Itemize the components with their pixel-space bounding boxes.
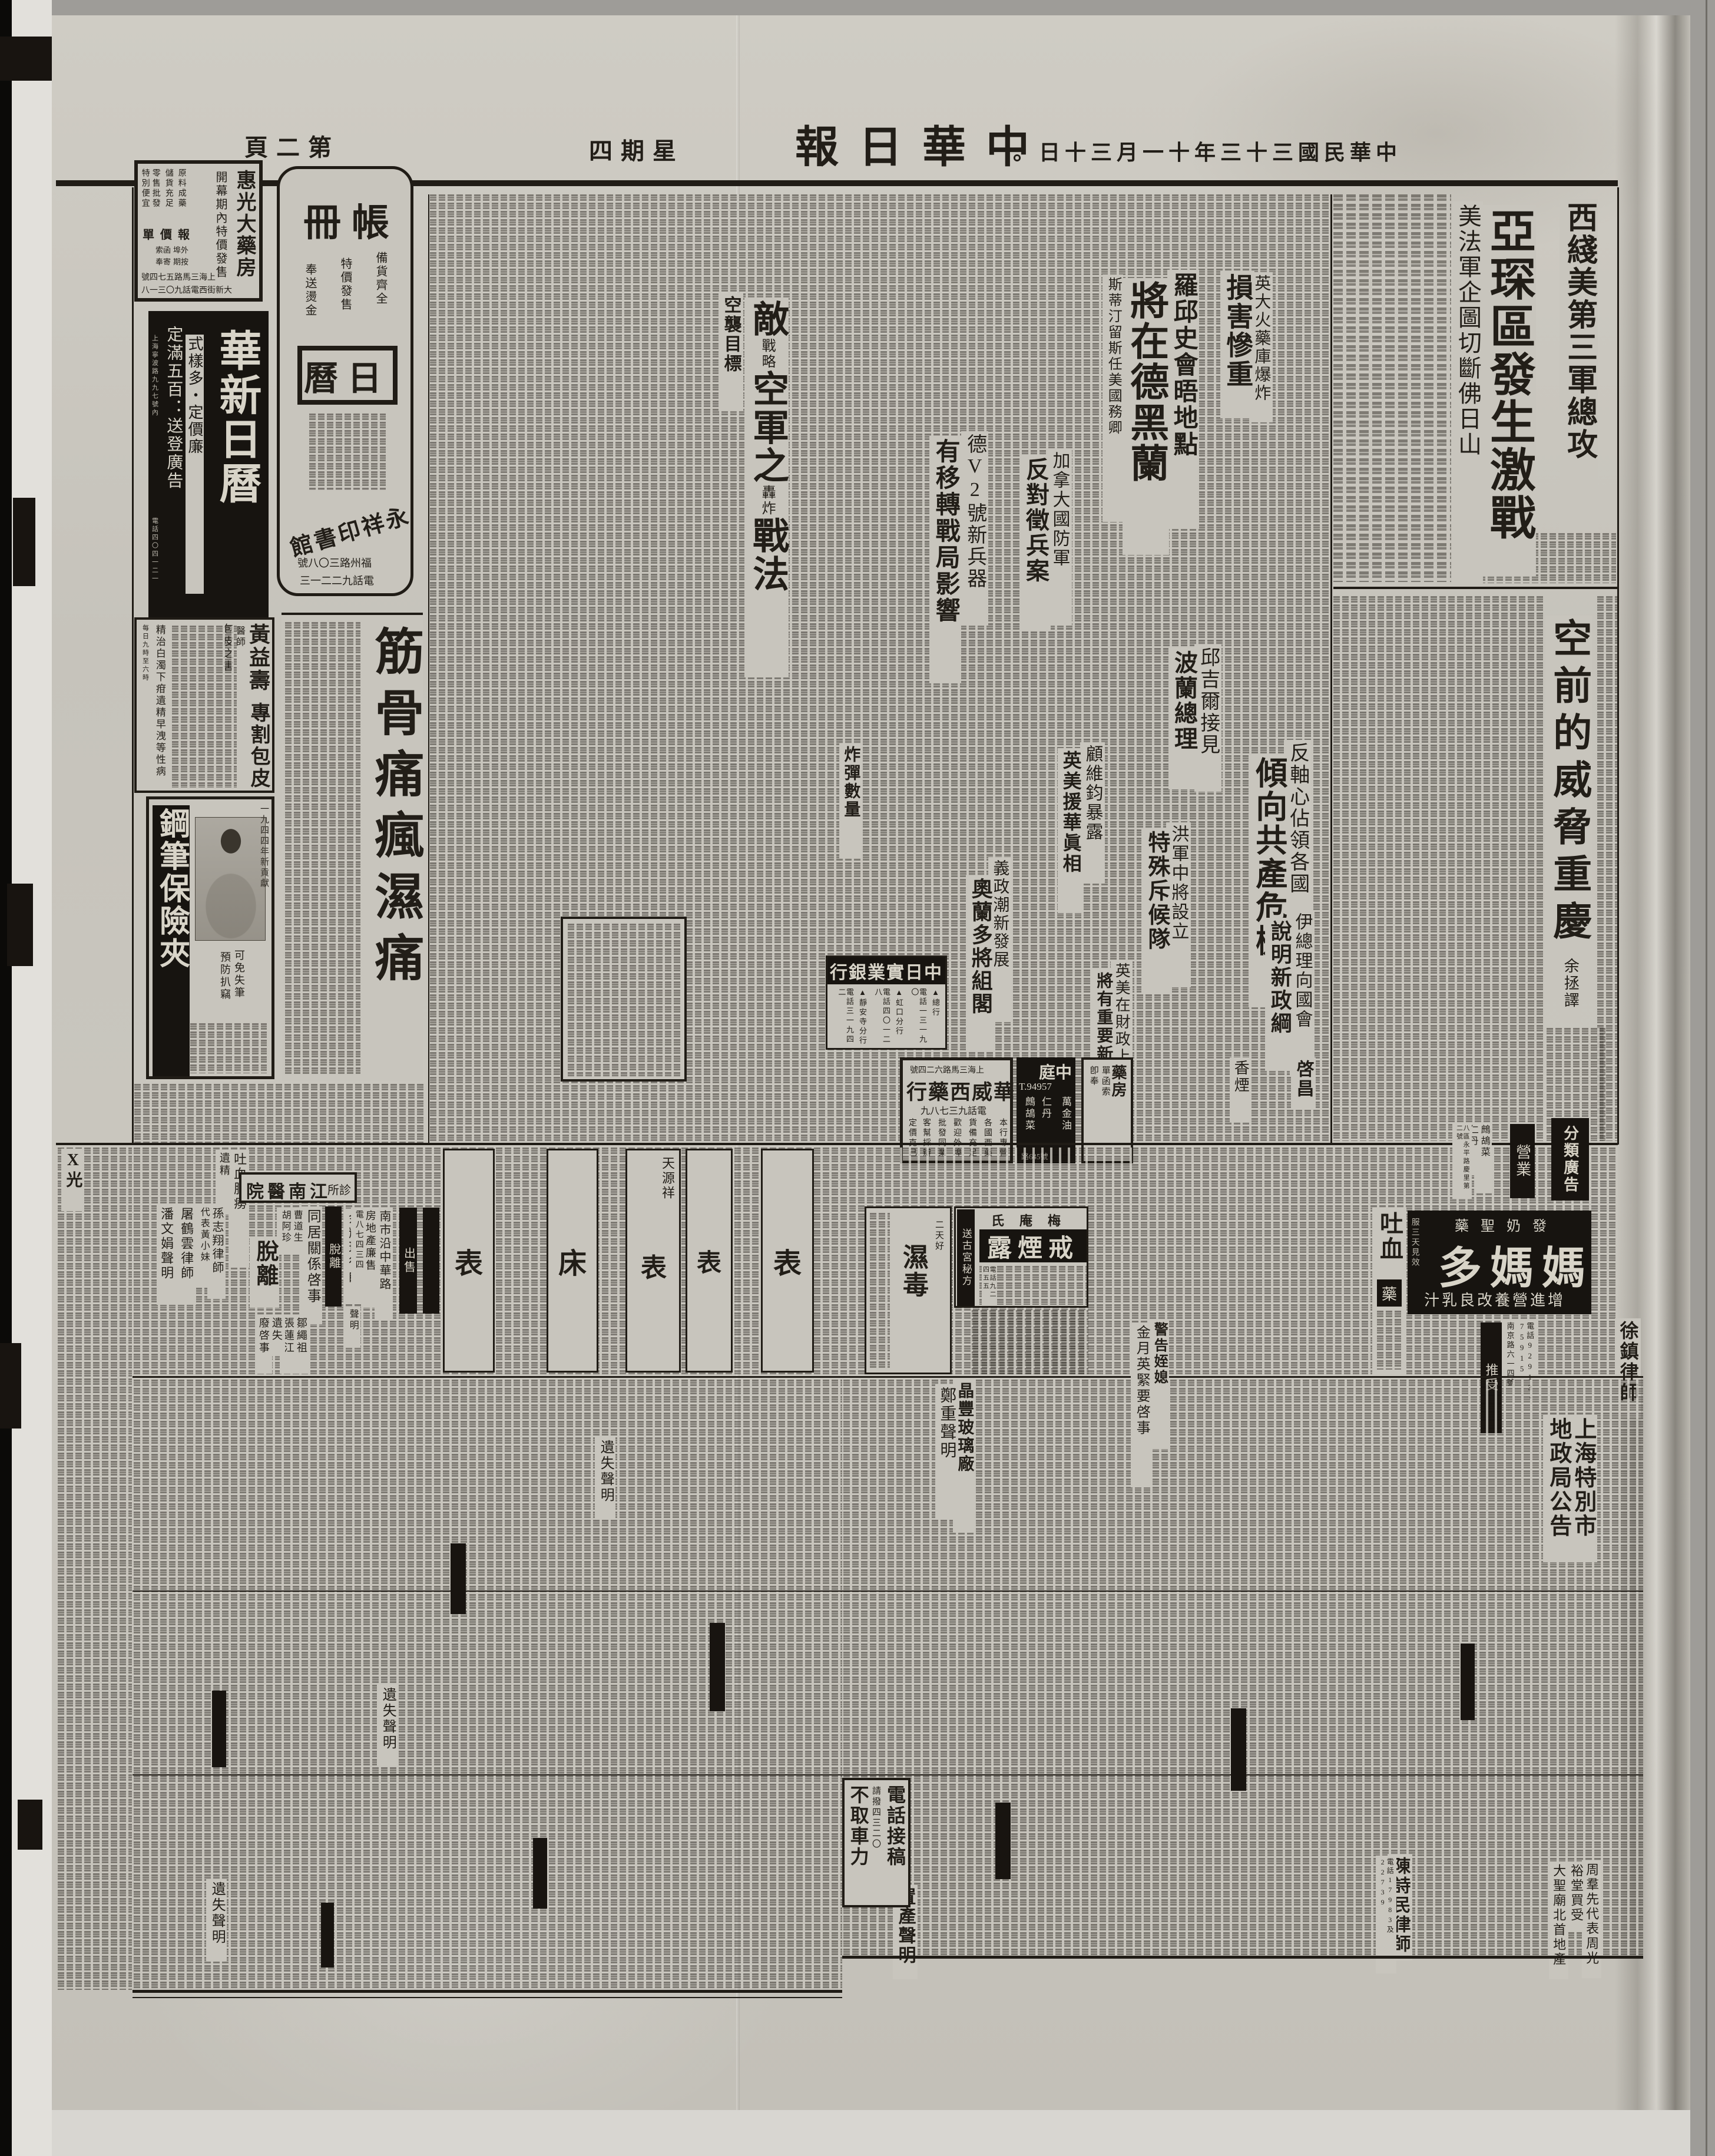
ad-huawei-phone: 九八七三九話電 [921,1103,986,1117]
ad-huawei-address: 號四二六路馬三海上 [910,1064,984,1076]
ad-huiguang-q: 期按 [173,256,188,267]
ad-ledger-point: 備貨齊全 [374,252,386,316]
notice-lost-stmt: 遺失聲明 [206,1879,227,1962]
ad-ledger-publisher: 館書印祥永 [286,497,413,563]
ad-zhongting-phone: T.94957 [1019,1081,1052,1093]
ad-bank-branch: ▲虹口分行 [895,988,903,1047]
ad-huang-hours: 每日九時至六時 [141,624,148,742]
ad-huiguang-q: 索函 [155,244,171,255]
bed-char: 床 [558,1240,587,1281]
notice-fei: 廢啓事 [255,1315,272,1374]
scan-artifact-blob [7,884,33,966]
notice-warn: 警告姪媳 [1148,1320,1169,1449]
ad-zhongting-item: 鷓鴣菜 [1024,1096,1034,1148]
lead-kicker: 西綫美第三軍總攻 [1560,199,1598,532]
ad-smoke-side: 送古宮秘方 [957,1209,975,1306]
row-rule [133,1774,1643,1775]
ad-smoke-phone: 電話九二四五五 [982,1266,995,1305]
ad-huaxin-phone: 電話四〇四一二一 [151,517,158,600]
label-bar [533,1838,547,1909]
ad-jiangnan-hospital: 院醫南江 所診 [239,1172,357,1203]
man-illustration [195,817,266,941]
ad-huiguang-address: 號四七五路馬三海上 [141,271,216,283]
headline-koo-title: 英美援華眞相 [1058,748,1084,913]
notice-sun-sub: 代表黃小妹 [196,1205,211,1287]
ad-huiguang-point: 原料成藥 [177,168,186,221]
ad-huiguang-q: 埠外 [173,244,188,255]
ad-blood: 吐血 藥 [1372,1208,1406,1375]
ad-pen-tag1: 可免失筆 [233,950,244,1014]
notice-lost-stmt: 遺失聲明 [595,1437,615,1520]
ad-huiguang-promo: 開幕期內特價發售 [214,171,226,297]
ad-huang-name: 黃益壽 [246,623,269,700]
notice-zhou3: 大聖廟北首地產 [1549,1861,1568,1979]
notice-glass2: 鄭重聲明 [935,1384,958,1520]
ad-zhongting-name: 庭中 [1039,1060,1072,1083]
ad-bed-shop: 床 [547,1149,598,1373]
watch-shop-name: 天源祥 [661,1156,674,1227]
subhead-bomb-count: 炸彈數量 [839,743,862,858]
headline-iran-kicker: 伊總理向國會 [1290,910,1315,1075]
ad-huang-note: 精治白濁下疳遺精早洩等性病 [154,624,165,789]
ad-pain-plaster: 筋骨痛瘋濕痛 [282,613,423,1081]
notice-land-bureau2: 地政局公告 [1543,1415,1572,1562]
bottom-rule-left2 [133,1997,842,1998]
ad-huaxin-tag1: 式樣多・定價廉 [186,335,204,594]
masthead-weekday: 四期星 [589,132,684,166]
ad-huiguang-quote: 單價報 [143,225,196,242]
ad-pen-clip: 鋼筆保險夾 一九四四年新貢獻 可免失筆 預防扒竊 [146,796,274,1079]
ad-watch-shop: 天源祥 表 [625,1149,681,1373]
ad-pharmacy-name: 藥房 [1110,1064,1126,1117]
ad-ledger-point: 奉送燙金 [303,263,316,328]
ad-pain-name: 筋骨痛瘋濕痛 [369,626,421,1073]
ad-ledger-point: 特價發售 [339,257,351,322]
ad-ledger-detail-text [309,414,386,490]
ad-watch-shop: 表 [443,1149,495,1373]
ad-huiguang-address: 八一三〇九話電西街新大 [141,284,232,296]
airforce-main3: 戰法 [747,517,787,593]
section-rule [133,1376,1643,1378]
headline-scout-title: 特殊斥候隊 [1141,828,1171,993]
ad-lung: 吐血肺癆 [230,1150,249,1268]
ad-qichang-name: 啓昌 [1291,1057,1316,1108]
scanner-right-edge-line [1706,0,1707,2156]
ad-mamaduo-name: 多媽媽 [1438,1233,1594,1296]
section-rule [1333,587,1618,589]
watch-char: 表 [455,1240,483,1281]
ad-ledger-address: 號八〇三路州福 [297,555,372,570]
ad-damp-name: 濕毒 [899,1244,926,1326]
ad-huaxin-addr: 上海寧波路九九七號內 [151,335,158,511]
promo-line2: 請撥四三二〇 [870,1786,880,1880]
watch-char: 表 [697,1243,721,1279]
scanner-left-black-edge [0,0,12,2156]
scan-artifact-blob [18,1800,42,1850]
headline-churchill-title: 波蘭總理 [1168,648,1199,789]
row-rule [133,1590,1643,1592]
classified-header: 分類廣告 [1551,1118,1589,1201]
ad-damp-side: 二天好 [933,1220,943,1267]
ad-damp: 濕毒 二天好 [865,1206,952,1374]
ad-bank-phone: 電話一三一九〇 [911,988,926,1047]
feature-title: 空前的威脅重慶 [1545,616,1592,951]
headline-powder-title: 損害慘重 [1220,271,1254,418]
ad-ledger-name: 冊帳 [303,193,400,247]
label-detach: 脫離 [325,1206,342,1307]
headline-tehran-kicker: 羅邱史會晤地點 [1167,270,1199,529]
notice-yu-sub: 聲明 [345,1307,360,1348]
ad-bank-phone: 電話三一九四二 [837,988,853,1047]
watch-char: 表 [633,1239,674,1292]
headline-v2-kicker: 德V2號新兵器 [961,431,988,626]
headline-italy-title: 奧蘭多將組閣 [966,875,994,1052]
promo-line1: 電話接稿 [885,1785,905,1903]
ad-mamaduo-side: 服三天見效 [1410,1218,1419,1288]
ad-smoke-brand: 氏庵梅 [991,1211,1076,1229]
ad-zhongting-item: 萬金油 [1060,1096,1071,1148]
ad-yongxiang-ledger: 冊帳 備貨齊全 特價發售 奉送燙金 曆日 館書印祥永 號八〇三路州福 三一二二九… [277,166,413,596]
ad-huang-service: 專割包皮 [247,702,269,791]
headline-airforce: 敵戰略空軍之轟炸戰法 [744,297,789,677]
column-rule [1330,194,1332,1143]
notice-estate-phone: 電八七四三四 [351,1208,366,1290]
ad-bank-branch: ▲總行 [931,988,939,1047]
ad-smoke-name: 露煙戒 [979,1229,1087,1262]
masthead-title: 報日華中 [795,112,1049,175]
ad-watch-shop: 表 [686,1149,733,1373]
misc-text-under-ads [134,1084,426,1143]
ad-pharmacy-note: 單函索 [1100,1066,1110,1119]
ad-huiguang-pharmacy: 惠光大藥房 開幕期內特價發售 原料成藥 儲貨充足 零售批發 特別便宜 單價報 埠… [134,160,263,302]
ad-blood-name: 吐血 [1377,1211,1402,1276]
airforce-anno1: 戰略 [759,338,774,370]
lead-headline: 亞琛區發生激戰 [1482,205,1536,576]
ad-huaxin-calendar: 華新日曆 式樣多・定價廉 定滿五百：送登廣告 上海寧波路九九七號內 電話四〇四一… [148,311,269,617]
ad-ledger-product: 曆日 [297,346,398,405]
notice-tu-lawyer: 屠鶴雲律師 [177,1205,196,1305]
classified-dense-text [972,1310,1088,1376]
headline-tehran-sub: 斯蒂汀留斯任美國務卿 [1102,275,1123,522]
ad-pharmacy-note: 卽奉 [1088,1066,1098,1107]
left-margin-text [58,1148,132,1990]
promo-phone-copy: 電話接稿 請撥四三二〇 不取車力 [842,1778,911,1907]
classified-dense-text [134,1380,842,1991]
airforce-main1: 敵 [747,300,787,338]
ad-huiguang-point: 特別便宜 [140,168,149,221]
ad-pen-name: 鋼筆保險夾 [153,805,190,1076]
ad-smoke-dew: 送古宮秘方 氏庵梅 露煙戒 電話九二四五五 [954,1206,1088,1308]
headline-iran-title: 說明新政綱 [1265,918,1293,1071]
notice-cohabit: 同居關係啓事 [302,1206,322,1324]
ad-pen-body-text [190,1023,267,1073]
ad-cigarette: 香煙 [1230,1057,1252,1122]
ad-blood-text [1377,1311,1402,1370]
airforce-anno2: 轟炸 [759,485,774,517]
notice-cohabit-name: 胡阿珍 [277,1208,293,1255]
classified-biz-label: 營業 [1510,1124,1535,1198]
promo-line3: 不取車力 [848,1785,868,1903]
watch-char: 表 [773,1240,802,1281]
headline-koo-kicker: 顧維鈞暴露 [1080,742,1105,884]
headline-tehran-title: 將在德黑蘭 [1123,278,1169,555]
ad-zhege-address: 八區永平路慶里第二號 [1452,1122,1472,1199]
notice-zhou2: 裕堂買受 [1567,1861,1586,1932]
feature-body [1333,596,1544,1141]
ad-huiguang-point: 儲貨充足 [164,168,173,221]
ad-huaxin-name: 華新日曆 [213,329,258,600]
lead-deck: 美法軍企圖切斷佛日山 [1452,201,1483,584]
label-bar [451,1543,466,1614]
ad-damp-text [870,1213,890,1369]
ad-bank: 行銀業實日中 ▲總行 電話一三一九〇 ▲虹口分行 電話四〇一二八 ▲靜安寺分行 … [826,955,947,1050]
notice-pan: 潘文娟聲明 [157,1205,176,1305]
ad-jiangnan-name: 院醫南江 [246,1177,331,1203]
headline-canada-title: 反對徵兵案 [1020,455,1051,631]
ad-huiguang-point: 零售批發 [151,168,160,221]
scan-artifact-blob [0,1343,21,1428]
ad-huiguang-name: 惠光大藥房 [233,170,254,299]
notice-lost-stmt: 遺失聲明 [377,1685,398,1767]
ad-mamaduo-tagline: 汁乳良改養營進增 [1424,1288,1565,1310]
label-bar [995,1803,1011,1879]
ad-huawei-name: 行藥西威華 [906,1076,1015,1106]
feature-byline: 余拯譯 [1560,955,1581,1023]
label-bar [710,1623,725,1711]
notice-detach-big: 脫離 [250,1237,279,1308]
ad-bank-branch: ▲靜安寺分行 [858,988,866,1047]
ad-mamaduo-tag: 藥聖奶發 [1455,1214,1558,1235]
ad-huang-doctor: 黃益壽 醫師 專割包皮 包皮之害 精治白濁下疳遺精早洩等性病 每日九時至六時 [134,617,274,793]
ad-huaxin-tag2: 定滿五百：送登廣告 [165,326,182,603]
section-rule [56,1143,1618,1145]
scanner-bottom-strip [52,2110,1690,2156]
label-bar [212,1691,226,1767]
label-bar [1461,1644,1475,1720]
ad-box-unreadable [561,917,687,1082]
subhead-air-target: 空襲目標 [719,293,743,411]
column-rule [428,194,429,1143]
label-sale: 出售 [399,1208,417,1314]
label-bar [321,1903,334,1967]
ad-bank-phone: 電話四〇一二八 [874,988,890,1047]
ad-zhongting-item: 仁丹 [1040,1096,1051,1135]
right-print-border [1617,187,1619,1145]
lead-article-body [1333,194,1451,582]
ad-pen-tag2: 預防扒竊 [219,951,230,1016]
label-bar [423,1208,439,1314]
headline-v2-title: 有移轉戰局影響 [929,436,961,683]
ad-xray: X光 [61,1149,84,1211]
ad-watch-shop: 表 [761,1149,814,1373]
ad-mamaduo: 藥聖奶發 多媽媽 汁乳良改養營進增 服三天見效 [1408,1211,1591,1314]
ad-blood-unit: 藥 [1377,1279,1402,1307]
headline-canada-kicker: 加拿大國防軍 [1047,449,1072,626]
notice-warn2: 金月英緊要啓事 [1131,1322,1151,1487]
left-margin-rule [132,187,134,1145]
ad-bank-name: 行銀業實日中 [827,957,945,984]
ad-huang-body-text [172,626,237,788]
scan-artifact-blob [13,498,35,586]
masthead-page-number: 頁二第 [244,128,340,163]
airforce-main2: 空軍之 [747,370,787,485]
bottom-rule-right [842,1956,1643,1959]
label-bar [1231,1708,1246,1791]
ad-pain-body-text [285,622,360,1076]
masthead-date: 。日十三月一十年三十三國民華中 [1013,135,1402,166]
ad-huiguang-q: 奉寄 [155,256,171,267]
ad-ledger-phone: 三一二二九話電 [300,573,374,588]
bottom-rule-left [133,1990,842,1993]
ad-box-text [568,924,682,1077]
ad-jiangnan-sub: 所診 [327,1180,351,1198]
